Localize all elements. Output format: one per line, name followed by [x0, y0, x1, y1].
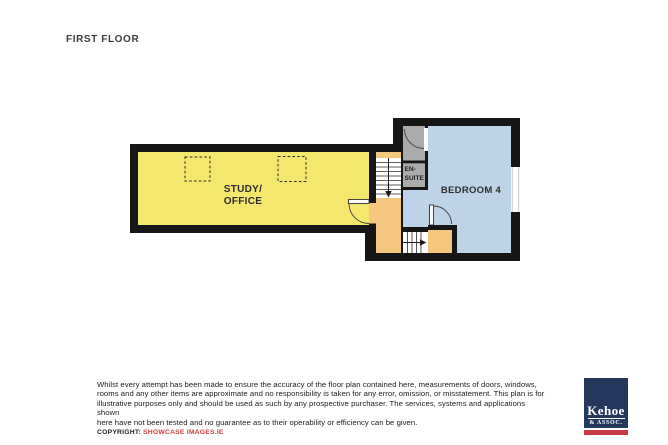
floorplan-svg: STUDY/ OFFICE EN- SUITE BEDROOM 4: [0, 0, 668, 445]
lower-stair-landing: [428, 230, 452, 253]
logo-rule: [588, 418, 625, 419]
study-label-line1: STUDY/: [224, 184, 262, 195]
disclaimer-line: illustrative purposes only and should be…: [97, 399, 549, 418]
ensuite-label-line2: SUITE: [405, 175, 425, 182]
study-door-opening: [369, 203, 376, 224]
disclaimer-line: here have not been tested and no guarant…: [97, 418, 549, 427]
disclaimer: Whilst every attempt has been made to en…: [97, 380, 549, 427]
page-canvas: FIRST FLOOR: [0, 0, 668, 445]
ensuite-label-line1: EN-: [405, 166, 416, 173]
disclaimer-line: Whilst every attempt has been made to en…: [97, 380, 549, 389]
logo: Kehoe & ASSOC.: [584, 378, 628, 435]
logo-name: Kehoe: [587, 404, 624, 417]
bedroom-door-wall-stub: [428, 225, 452, 230]
disclaimer-line: rooms and any other items are approximat…: [97, 389, 549, 398]
copyright: COPYRIGHT: SHOWCASE IMAGES.IE: [97, 429, 224, 436]
landing-right-wall: [452, 225, 457, 253]
bedroom-label: BEDROOM 4: [441, 185, 502, 196]
ensuite-door-opening: [424, 128, 428, 151]
stair-top-landing: [376, 152, 401, 158]
bedroom-room-arm: [403, 190, 428, 227]
logo-box: Kehoe & ASSOC.: [584, 378, 628, 428]
copyright-label: COPYRIGHT:: [97, 429, 143, 436]
study-label-line2: OFFICE: [224, 196, 262, 207]
ensuite-divider-wall: [403, 161, 425, 164]
logo-subtitle: & ASSOC.: [589, 420, 622, 426]
hall-landing: [376, 198, 401, 253]
bedroom-door-leaf: [430, 205, 434, 225]
copyright-value: SHOWCASE IMAGES.IE: [143, 429, 224, 436]
logo-stripe: [584, 430, 628, 435]
study-door-leaf: [349, 200, 370, 204]
